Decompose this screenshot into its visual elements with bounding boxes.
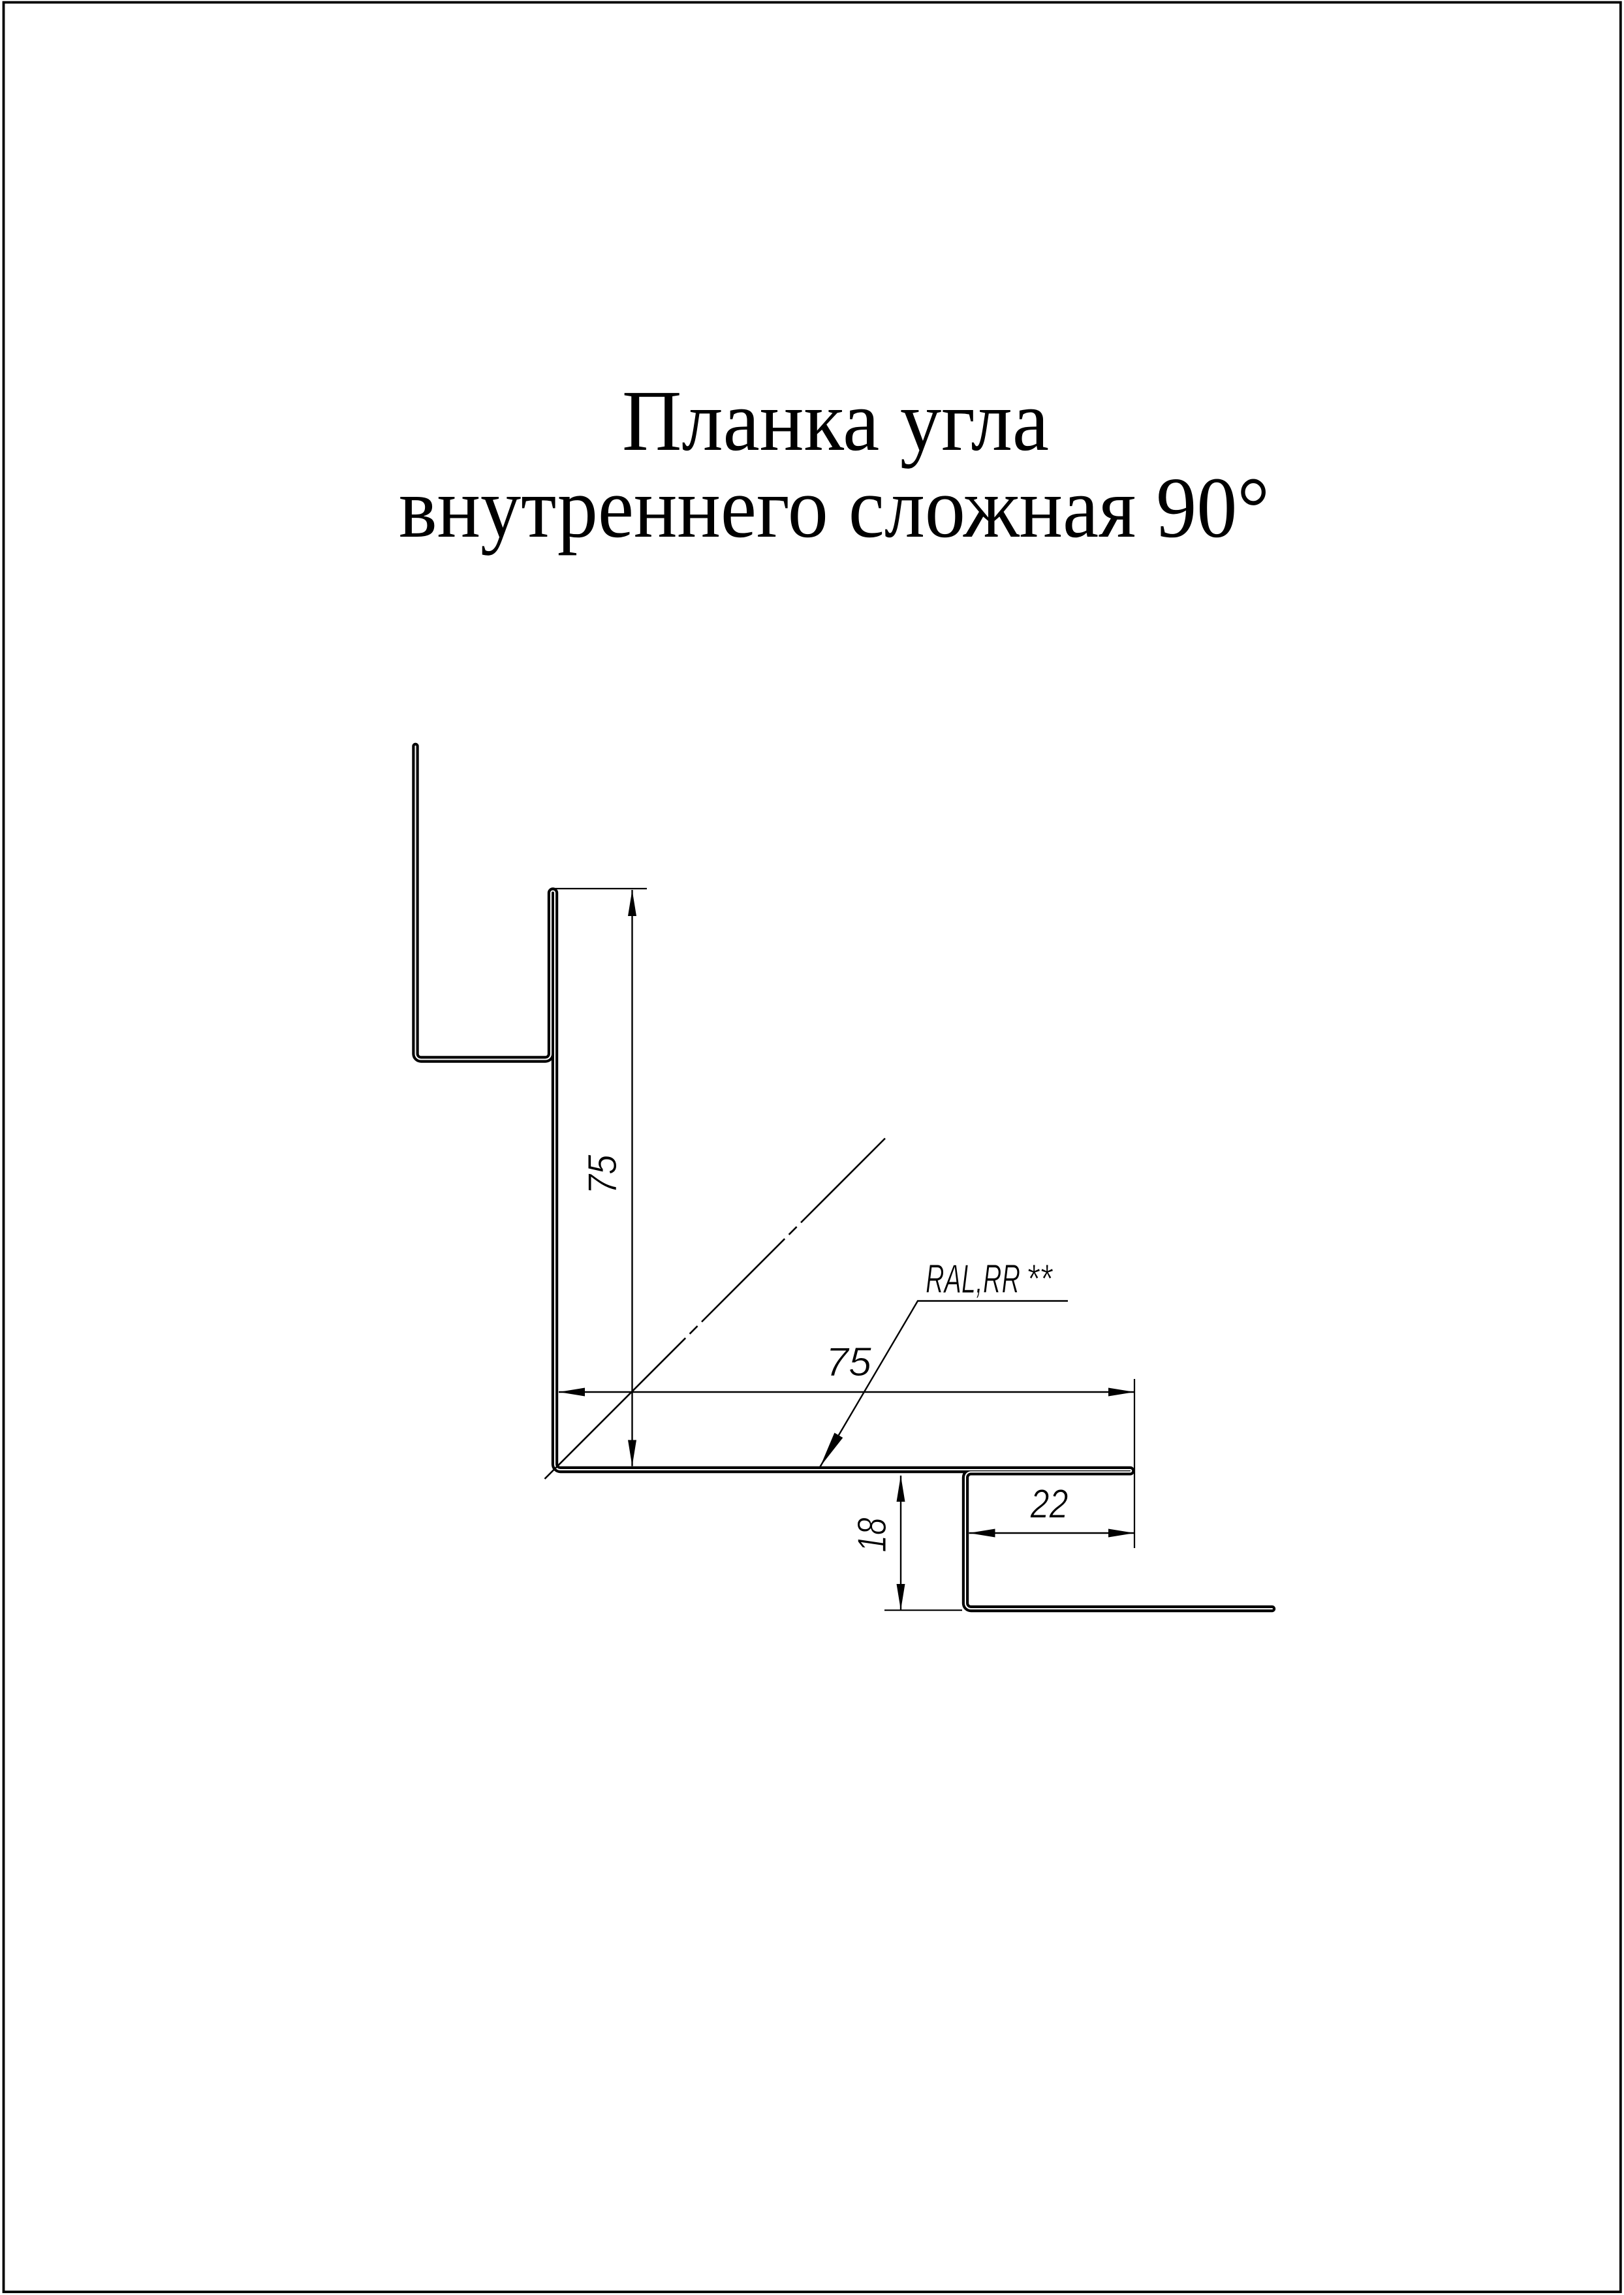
svg-text:18: 18 <box>850 1517 895 1552</box>
svg-text:**: ** <box>1026 1257 1054 1302</box>
svg-text:внутреннего сложная 90°: внутреннего сложная 90° <box>399 459 1270 556</box>
svg-text:Планка угла: Планка угла <box>622 372 1049 469</box>
svg-text:75: 75 <box>826 1340 872 1385</box>
svg-text:22: 22 <box>1030 1482 1069 1527</box>
svg-text:75: 75 <box>580 1154 625 1194</box>
svg-text:RAL,RR: RAL,RR <box>926 1257 1020 1302</box>
